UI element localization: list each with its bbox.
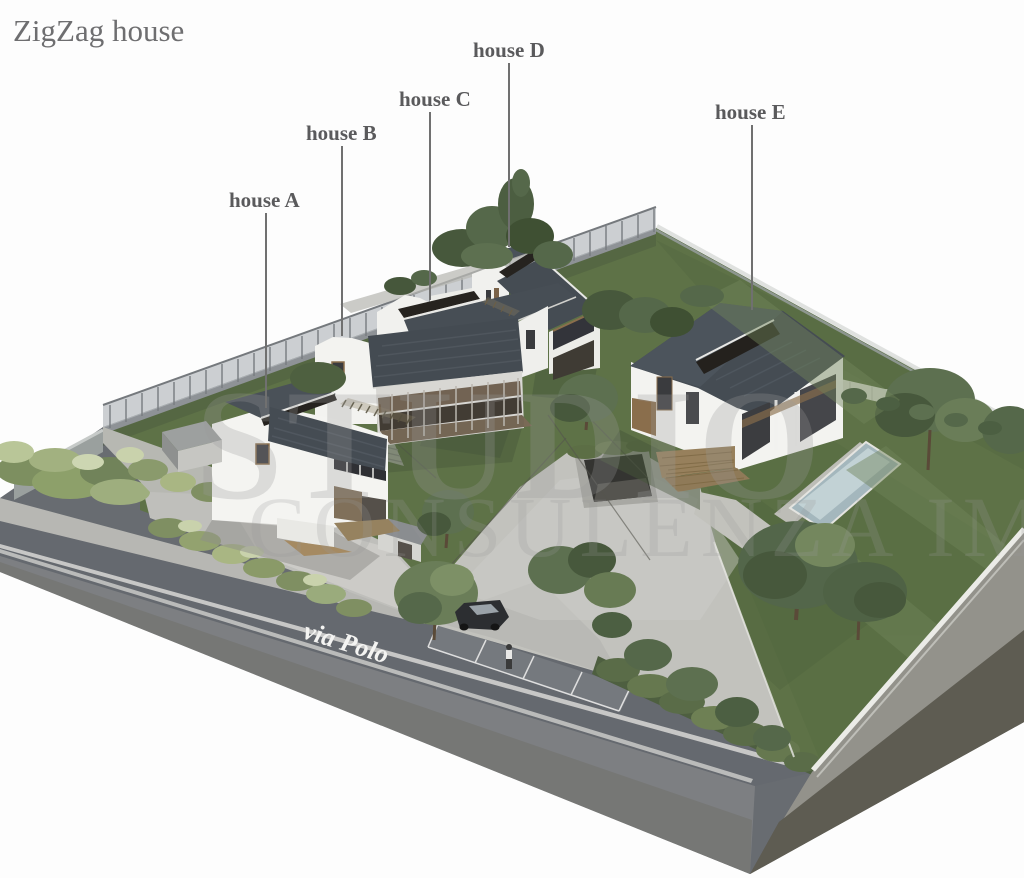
svg-text:house E: house E [715, 100, 786, 124]
svg-text:house A: house A [229, 188, 300, 212]
svg-text:CONSULENZA IMM: CONSULENZA IMM [248, 479, 1024, 575]
svg-text:house B: house B [306, 121, 377, 145]
svg-text:ZigZag house: ZigZag house [13, 13, 184, 48]
svg-text:house C: house C [399, 87, 471, 111]
svg-text:house D: house D [473, 38, 545, 62]
